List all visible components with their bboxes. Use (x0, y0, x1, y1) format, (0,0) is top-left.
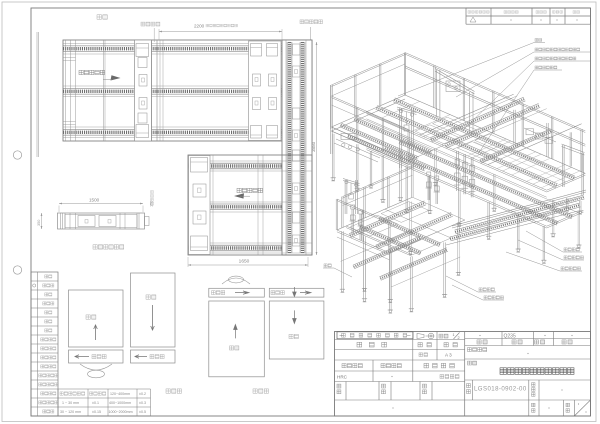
svg-text:A 3: A 3 (445, 353, 452, 358)
svg-text:±0.15: ±0.15 (92, 410, 101, 414)
svg-text:120~400mm: 120~400mm (110, 392, 130, 396)
svg-text:400~1000mm: 400~1000mm (109, 401, 131, 405)
svg-text:±0.5: ±0.5 (139, 410, 146, 414)
svg-text:±0.3: ±0.3 (139, 401, 146, 405)
svg-text:1500: 1500 (89, 198, 100, 203)
svg-text:2: 2 (458, 336, 460, 340)
svg-text:350: 350 (37, 220, 41, 226)
svg-text:1: 1 (453, 333, 455, 337)
svg-text:Q235: Q235 (504, 334, 516, 340)
svg-text:HRC: HRC (337, 375, 348, 380)
svg-text:LGS018-0902-00: LGS018-0902-00 (474, 386, 527, 393)
svg-text:1000~2000mm: 1000~2000mm (109, 410, 133, 414)
svg-text:±0.2: ±0.2 (139, 392, 146, 396)
svg-text:30 ~ 120 mm: 30 ~ 120 mm (60, 410, 81, 414)
svg-text:1 ~ 30 mm: 1 ~ 30 mm (62, 401, 79, 405)
svg-text:3880: 3880 (311, 141, 316, 152)
svg-text:1650: 1650 (239, 259, 250, 265)
svg-text:150: 150 (150, 201, 154, 207)
svg-text:±0.1: ±0.1 (92, 401, 99, 405)
svg-text:2200: 2200 (194, 24, 205, 29)
